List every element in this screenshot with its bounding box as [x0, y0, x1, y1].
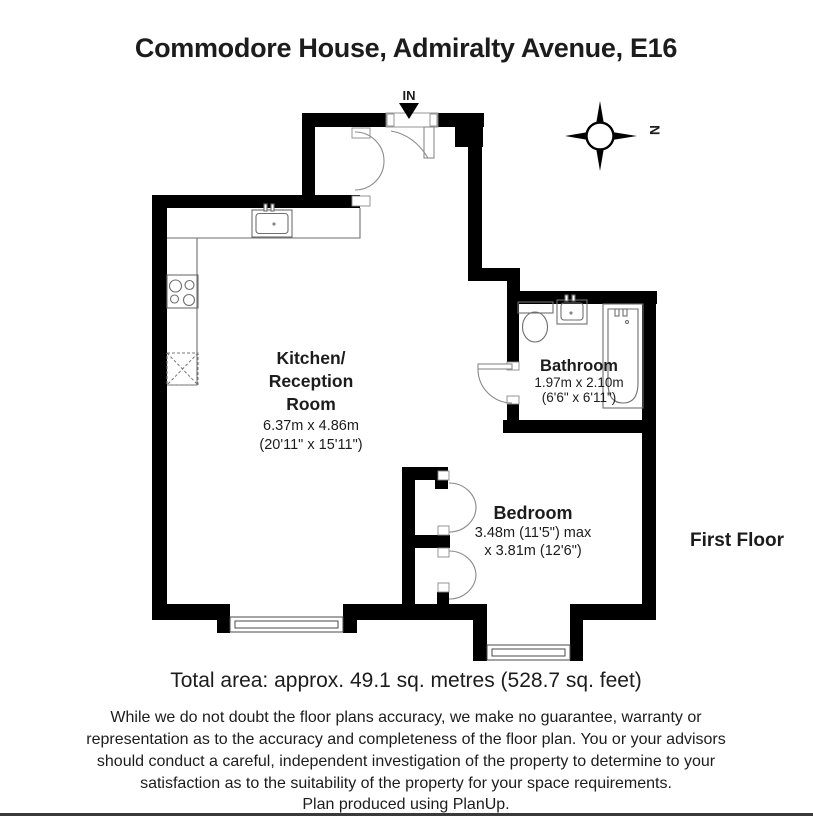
- floor-label: First Floor: [690, 530, 785, 551]
- wardrobe-door-arc-1: [449, 483, 476, 508]
- bathroom-label: Bathroom: [540, 357, 618, 375]
- floorplan-page: Commodore House, Admiralty Avenue, E16: [0, 0, 813, 816]
- kitchen-label-3: Room: [286, 394, 336, 414]
- kitchen-counter-left: [167, 238, 197, 385]
- kitchen-window-pane: [235, 621, 338, 628]
- bathroom-dims-imperial: (6'6" x 6'11"): [542, 390, 617, 405]
- kitchen-sink-tap-left: [264, 204, 267, 211]
- bathroom-sink-drain: [570, 312, 572, 314]
- wall-west: [152, 195, 167, 620]
- bedroom-dims-2: x 3.81m (12'6"): [484, 543, 581, 559]
- compass-hub: [587, 123, 614, 150]
- page-title: Commodore House, Admiralty Avenue, E16: [135, 33, 678, 63]
- wall-main-top: [152, 195, 360, 208]
- hob-burner-4: [184, 295, 195, 306]
- wardrobe-door-frame-4: [438, 583, 449, 592]
- stub-kitchen-window-left: [217, 604, 230, 633]
- wardrobe-door-arc-3: [449, 551, 476, 575]
- bathtub-tap-left: [615, 309, 619, 316]
- wardrobe-door-frame-1: [438, 471, 449, 480]
- bedroom-label: Bedroom: [493, 503, 572, 523]
- vestibule-door-arc-lower: [355, 161, 384, 190]
- wardrobe-door-arc-2: [449, 508, 476, 532]
- void-box-cross: [167, 353, 198, 385]
- wall-wardrobe-north-jut: [435, 480, 448, 489]
- total-area-text: Total area: approx. 49.1 sq. metres (528…: [170, 669, 642, 692]
- entrance-frame-right: [430, 114, 437, 126]
- credit-text: Plan produced using PlanUp.: [302, 796, 509, 813]
- windows: [230, 617, 570, 660]
- stub-bedroom-window-right: [570, 604, 583, 661]
- bathroom-sink-tap-left: [565, 295, 568, 301]
- compass-north-letter: N: [647, 125, 663, 135]
- wardrobe-door-frame-2: [438, 526, 449, 535]
- wall-bathroom-west-upper: [507, 304, 519, 362]
- hob-burner-3: [171, 295, 179, 303]
- bedroom-window-pane: [492, 649, 565, 656]
- footer: Total area: approx. 49.1 sq. metres (528…: [0, 669, 813, 816]
- entrance-door-arc: [391, 131, 428, 158]
- wall-vestibule-west: [302, 113, 315, 195]
- bathroom-sink-tap-right: [572, 295, 575, 301]
- vestibule-door-frame-bottom: [352, 196, 370, 206]
- disclaimer-line-3: should conduct a careful, independent in…: [97, 753, 716, 770]
- entrance-frame-left: [387, 114, 394, 126]
- disclaimer-line-1: While we do not doubt the floor plans ac…: [110, 709, 702, 726]
- kitchen-label-1: Kitchen/: [276, 348, 345, 368]
- hob-burner-1: [170, 280, 182, 292]
- disclaimer-line-2: representation as to the accuracy and co…: [86, 731, 726, 748]
- kitchen-dims-metric: 6.37m x 4.86m: [263, 418, 359, 434]
- compass-icon: N: [565, 101, 663, 171]
- post-wardrobe-south: [437, 592, 449, 604]
- floorplan-canvas: Commodore House, Admiralty Avenue, E16: [0, 0, 813, 816]
- wall-east-step-horizontal: [468, 268, 520, 281]
- wall-bottom-middle: [343, 604, 487, 620]
- bathroom-door-leaf: [478, 364, 512, 369]
- entrance-in-label: IN: [403, 88, 416, 103]
- bathroom-dims-metric: 1.97m x 2.10m: [534, 375, 623, 390]
- disclaimer-line-4: satisfaction as to the suitability of th…: [140, 775, 672, 792]
- kitchen-dims-imperial: (20'11" x 15'11"): [259, 437, 362, 453]
- wardrobe-door-arc-4: [449, 575, 476, 599]
- toilet-bowl: [523, 312, 548, 342]
- bathroom-sink-basin: [561, 303, 583, 320]
- room-labels: Kitchen/ Reception Room 6.37m x 4.86m (2…: [259, 348, 784, 559]
- wall-vestibule-top-right: [438, 113, 484, 127]
- kitchen-label-2: Reception: [269, 371, 354, 391]
- hob-burner-2: [185, 281, 194, 290]
- wall-bottom-bedroom-right: [583, 604, 656, 620]
- bathtub-drain: [626, 321, 629, 324]
- wall-bathroom-bottom: [503, 420, 642, 433]
- wardrobe-door-frame-3: [438, 548, 449, 557]
- kitchen-sink-tap-right: [271, 204, 274, 211]
- wall-east-lower: [642, 291, 656, 620]
- stub-bedroom-window-left: [473, 604, 487, 661]
- bathtub-tap-right: [623, 309, 627, 316]
- wall-east-upper: [468, 127, 482, 268]
- wall-wardrobe-mid: [402, 535, 450, 548]
- bedroom-dims-1: 3.48m (11'5") max: [475, 525, 592, 541]
